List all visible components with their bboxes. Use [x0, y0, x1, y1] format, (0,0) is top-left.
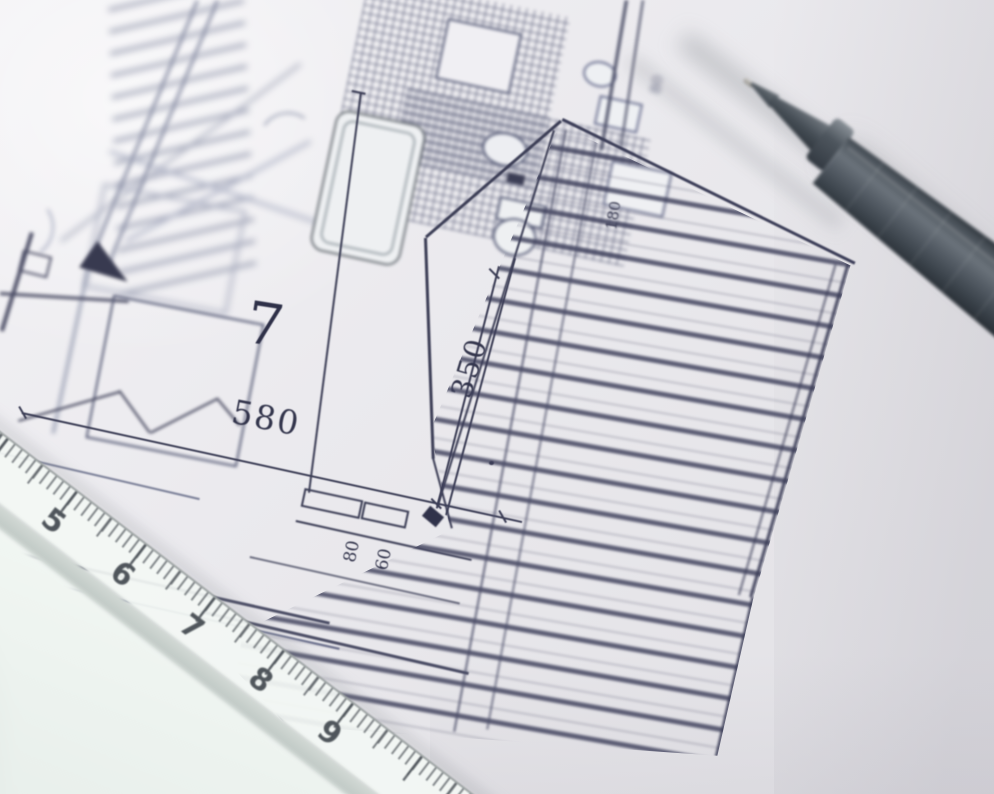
room-number-label: 7	[241, 288, 288, 361]
dim-580-label: 580	[229, 392, 304, 443]
photo-scene: 7 580 350 80 60 180 80	[0, 0, 994, 794]
dim-80-label: 80	[340, 539, 364, 564]
